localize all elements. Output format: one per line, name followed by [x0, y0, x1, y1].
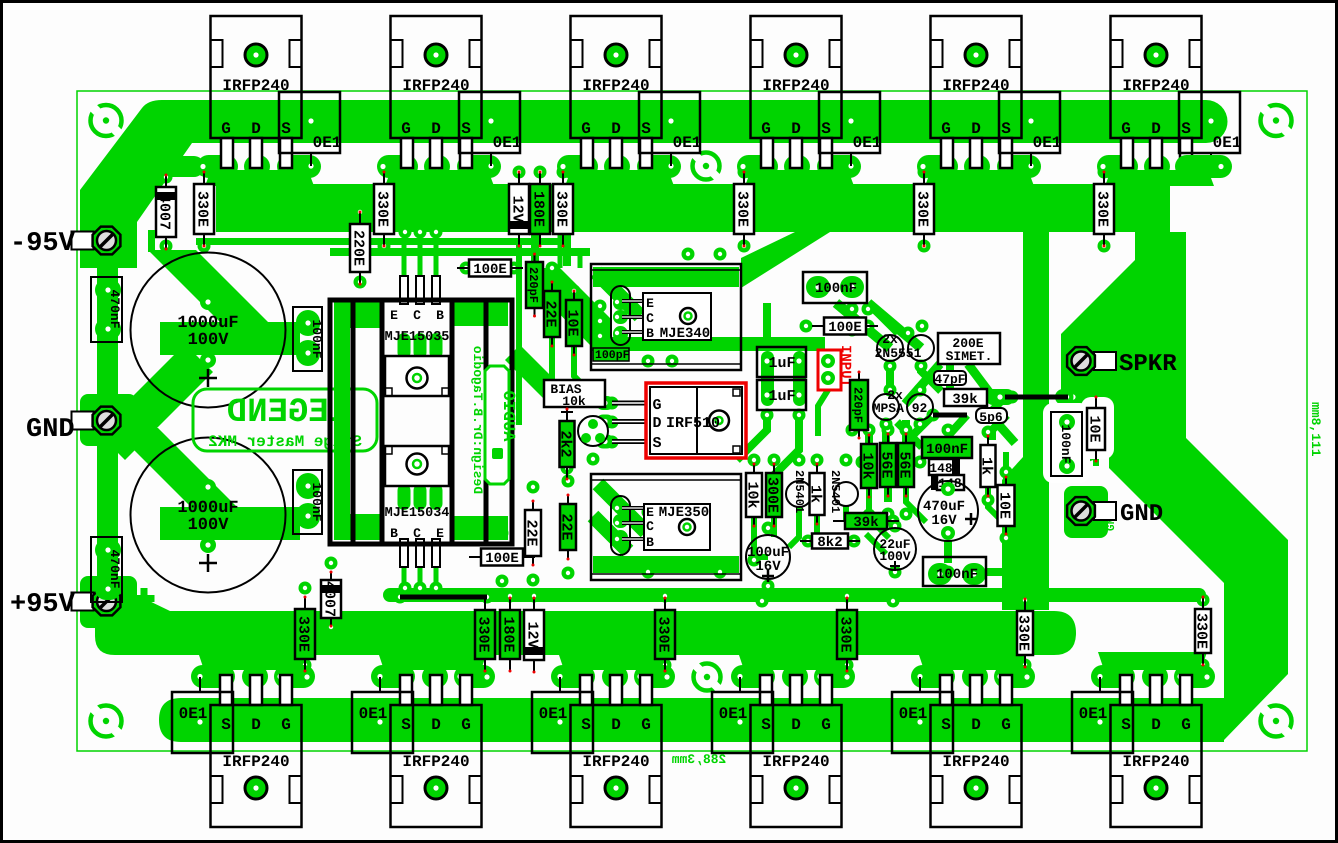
- svg-text:10k: 10k: [562, 394, 586, 409]
- svg-text:D: D: [652, 415, 661, 432]
- svg-text:E: E: [436, 526, 444, 541]
- svg-text:0E1: 0E1: [1033, 134, 1062, 152]
- svg-text:2x: 2x: [882, 332, 898, 347]
- svg-text:+95V: +95V: [10, 590, 76, 620]
- svg-text:D: D: [431, 120, 441, 138]
- svg-text:10k: 10k: [744, 481, 761, 508]
- svg-text:IRFP240: IRFP240: [942, 753, 1009, 771]
- svg-text:100E: 100E: [485, 551, 519, 567]
- svg-text:330E: 330E: [1193, 613, 1210, 649]
- svg-text:MJE340: MJE340: [660, 326, 710, 342]
- svg-text:D: D: [611, 120, 621, 138]
- svg-text:180E: 180E: [500, 616, 517, 652]
- svg-text:S: S: [652, 435, 661, 452]
- svg-text:S: S: [401, 716, 411, 734]
- svg-text:mm8,111: mm8,111: [1308, 402, 1323, 457]
- svg-text:100nF: 100nF: [926, 442, 968, 458]
- svg-text:100nF: 100nF: [309, 319, 324, 358]
- svg-text:330E: 330E: [475, 616, 492, 652]
- svg-text:IRFP240: IRFP240: [222, 753, 289, 771]
- svg-text:B: B: [390, 526, 398, 541]
- svg-text:2N5401: 2N5401: [828, 470, 842, 513]
- svg-text:22E: 22E: [523, 519, 540, 546]
- svg-text:D: D: [251, 716, 261, 734]
- svg-text:D: D: [431, 716, 441, 734]
- svg-text:100V: 100V: [188, 331, 230, 350]
- svg-text:B: B: [646, 326, 654, 341]
- svg-text:AUDIO: AUDIO: [498, 390, 517, 441]
- svg-text:330E: 330E: [734, 191, 751, 227]
- svg-text:E: E: [646, 505, 654, 520]
- svg-text:SPKR: SPKR: [1119, 351, 1177, 378]
- svg-text:22E: 22E: [558, 513, 575, 540]
- svg-text:GND: GND: [1120, 501, 1163, 528]
- svg-text:288,3mm: 288,3mm: [671, 752, 726, 767]
- svg-text:330E: 330E: [194, 191, 211, 227]
- svg-text:MJE15035: MJE15035: [385, 330, 450, 345]
- svg-text:0E1: 0E1: [493, 134, 522, 152]
- svg-text:0E1: 0E1: [179, 705, 208, 723]
- svg-text:330E: 330E: [837, 616, 854, 652]
- svg-text:G: G: [581, 120, 591, 138]
- svg-text:C: C: [413, 308, 421, 323]
- svg-text:S: S: [281, 120, 291, 138]
- svg-text:16V: 16V: [931, 513, 957, 529]
- svg-text:S: S: [221, 716, 231, 734]
- svg-text:100nF: 100nF: [936, 567, 978, 583]
- svg-text:MJE15034: MJE15034: [385, 506, 450, 521]
- svg-text:56E: 56E: [878, 451, 895, 478]
- svg-text:0E1: 0E1: [719, 705, 748, 723]
- svg-text:22E: 22E: [542, 300, 559, 327]
- svg-text:D: D: [791, 716, 801, 734]
- svg-text:G: G: [1001, 716, 1011, 734]
- svg-text:IRFP240: IRFP240: [402, 753, 469, 771]
- svg-text:IRFP240: IRFP240: [1122, 753, 1189, 771]
- svg-text:0E1: 0E1: [899, 705, 928, 723]
- svg-text:10E: 10E: [1086, 415, 1103, 442]
- svg-text:D: D: [791, 120, 801, 138]
- svg-text:330E: 330E: [1015, 615, 1032, 651]
- svg-text:1k: 1k: [807, 485, 824, 503]
- svg-text:220E: 220E: [350, 230, 367, 266]
- svg-text:G: G: [941, 120, 951, 138]
- svg-text:100pF: 100pF: [595, 349, 630, 362]
- svg-text:G: G: [821, 716, 831, 734]
- svg-text:220pF: 220pF: [851, 387, 865, 423]
- svg-text:0E1: 0E1: [539, 705, 568, 723]
- svg-text:S: S: [821, 120, 831, 138]
- svg-text:SIMET.: SIMET.: [946, 349, 993, 364]
- svg-text:330E: 330E: [1094, 191, 1111, 227]
- svg-text:1k: 1k: [978, 457, 995, 475]
- svg-text:GND: GND: [26, 415, 75, 445]
- svg-text:D: D: [251, 120, 261, 138]
- svg-text:E: E: [390, 308, 398, 323]
- svg-text:5p6: 5p6: [979, 410, 1003, 425]
- svg-text:IRFP240: IRFP240: [582, 753, 649, 771]
- svg-text:300E: 300E: [764, 477, 781, 513]
- svg-text:10E: 10E: [996, 492, 1013, 519]
- svg-text:G: G: [761, 120, 771, 138]
- svg-text:100E: 100E: [473, 262, 507, 278]
- svg-text:330E: 330E: [295, 616, 312, 652]
- svg-text:S: S: [761, 716, 771, 734]
- svg-text:8k2: 8k2: [817, 535, 842, 551]
- svg-text:47pF: 47pF: [934, 372, 965, 387]
- svg-text:470nF: 470nF: [107, 289, 122, 328]
- svg-text:S: S: [581, 716, 591, 734]
- svg-text:D: D: [1151, 716, 1161, 734]
- svg-text:S: S: [641, 120, 651, 138]
- svg-text:C: C: [413, 526, 421, 541]
- svg-text:D: D: [611, 716, 621, 734]
- svg-text:0E1: 0E1: [1079, 705, 1108, 723]
- svg-text:39k: 39k: [853, 515, 878, 531]
- svg-text:G: G: [652, 397, 661, 414]
- svg-text:4007: 4007: [156, 194, 173, 230]
- svg-text:100nF: 100nF: [1058, 424, 1073, 463]
- svg-text:G: G: [1121, 120, 1131, 138]
- svg-text:100nF: 100nF: [815, 281, 857, 297]
- svg-text:12V: 12V: [524, 621, 541, 648]
- svg-text:470nF: 470nF: [107, 549, 122, 588]
- svg-text:B: B: [436, 308, 444, 323]
- svg-text:220pF: 220pF: [526, 267, 540, 303]
- svg-text:G: G: [221, 120, 231, 138]
- svg-text:-95V: -95V: [10, 229, 76, 259]
- svg-text:IRF510: IRF510: [666, 415, 720, 432]
- svg-text:IRFP240: IRFP240: [762, 753, 829, 771]
- svg-text:330E: 330E: [374, 191, 391, 227]
- svg-text:D: D: [971, 716, 981, 734]
- svg-text:Design:Dr.B.Tagodio: Design:Dr.B.Tagodio: [470, 346, 485, 494]
- svg-text:G: G: [1181, 716, 1191, 734]
- svg-text:330E: 330E: [914, 191, 931, 227]
- svg-text:2N5551: 2N5551: [875, 346, 922, 361]
- svg-text:S: S: [461, 120, 471, 138]
- svg-text:0E1: 0E1: [1213, 134, 1242, 152]
- svg-text:G: G: [401, 120, 411, 138]
- svg-text:1uF: 1uF: [768, 388, 795, 405]
- svg-text:G: G: [641, 716, 651, 734]
- svg-text:0E1: 0E1: [313, 134, 342, 152]
- svg-text:D: D: [1151, 120, 1161, 138]
- svg-text:100V: 100V: [188, 516, 230, 535]
- svg-text:S: S: [1121, 716, 1131, 734]
- svg-text:330E: 330E: [553, 191, 570, 227]
- svg-text:100E: 100E: [828, 320, 862, 336]
- svg-text:MPSA 92: MPSA 92: [873, 401, 928, 416]
- svg-text:180E: 180E: [530, 191, 547, 227]
- svg-text:12V: 12V: [509, 195, 526, 222]
- svg-text:B: B: [646, 535, 654, 550]
- svg-text:S: S: [1001, 120, 1011, 138]
- svg-text:39k: 39k: [952, 392, 977, 408]
- svg-text:G: G: [281, 716, 291, 734]
- svg-text:56E: 56E: [896, 451, 913, 478]
- svg-text:C: C: [646, 519, 654, 534]
- svg-text:D: D: [971, 120, 981, 138]
- svg-text:100nF: 100nF: [309, 482, 324, 521]
- svg-text:C: C: [646, 311, 654, 326]
- svg-text:0E1: 0E1: [853, 134, 882, 152]
- svg-text:S: S: [941, 716, 951, 734]
- svg-text:2k2: 2k2: [557, 430, 574, 457]
- svg-text:G: G: [461, 716, 471, 734]
- svg-text:2N5401: 2N5401: [792, 470, 806, 513]
- svg-text:0E1: 0E1: [673, 134, 702, 152]
- svg-text:10k: 10k: [859, 452, 876, 479]
- svg-text:S: S: [1181, 120, 1191, 138]
- svg-text:330E: 330E: [655, 616, 672, 652]
- svg-text:GND: GND: [138, 407, 155, 434]
- svg-text:4007: 4007: [321, 581, 338, 617]
- svg-text:0E1: 0E1: [359, 705, 388, 723]
- svg-text:1uF: 1uF: [768, 355, 795, 372]
- svg-text:E: E: [646, 296, 654, 311]
- svg-text:10E: 10E: [564, 309, 581, 336]
